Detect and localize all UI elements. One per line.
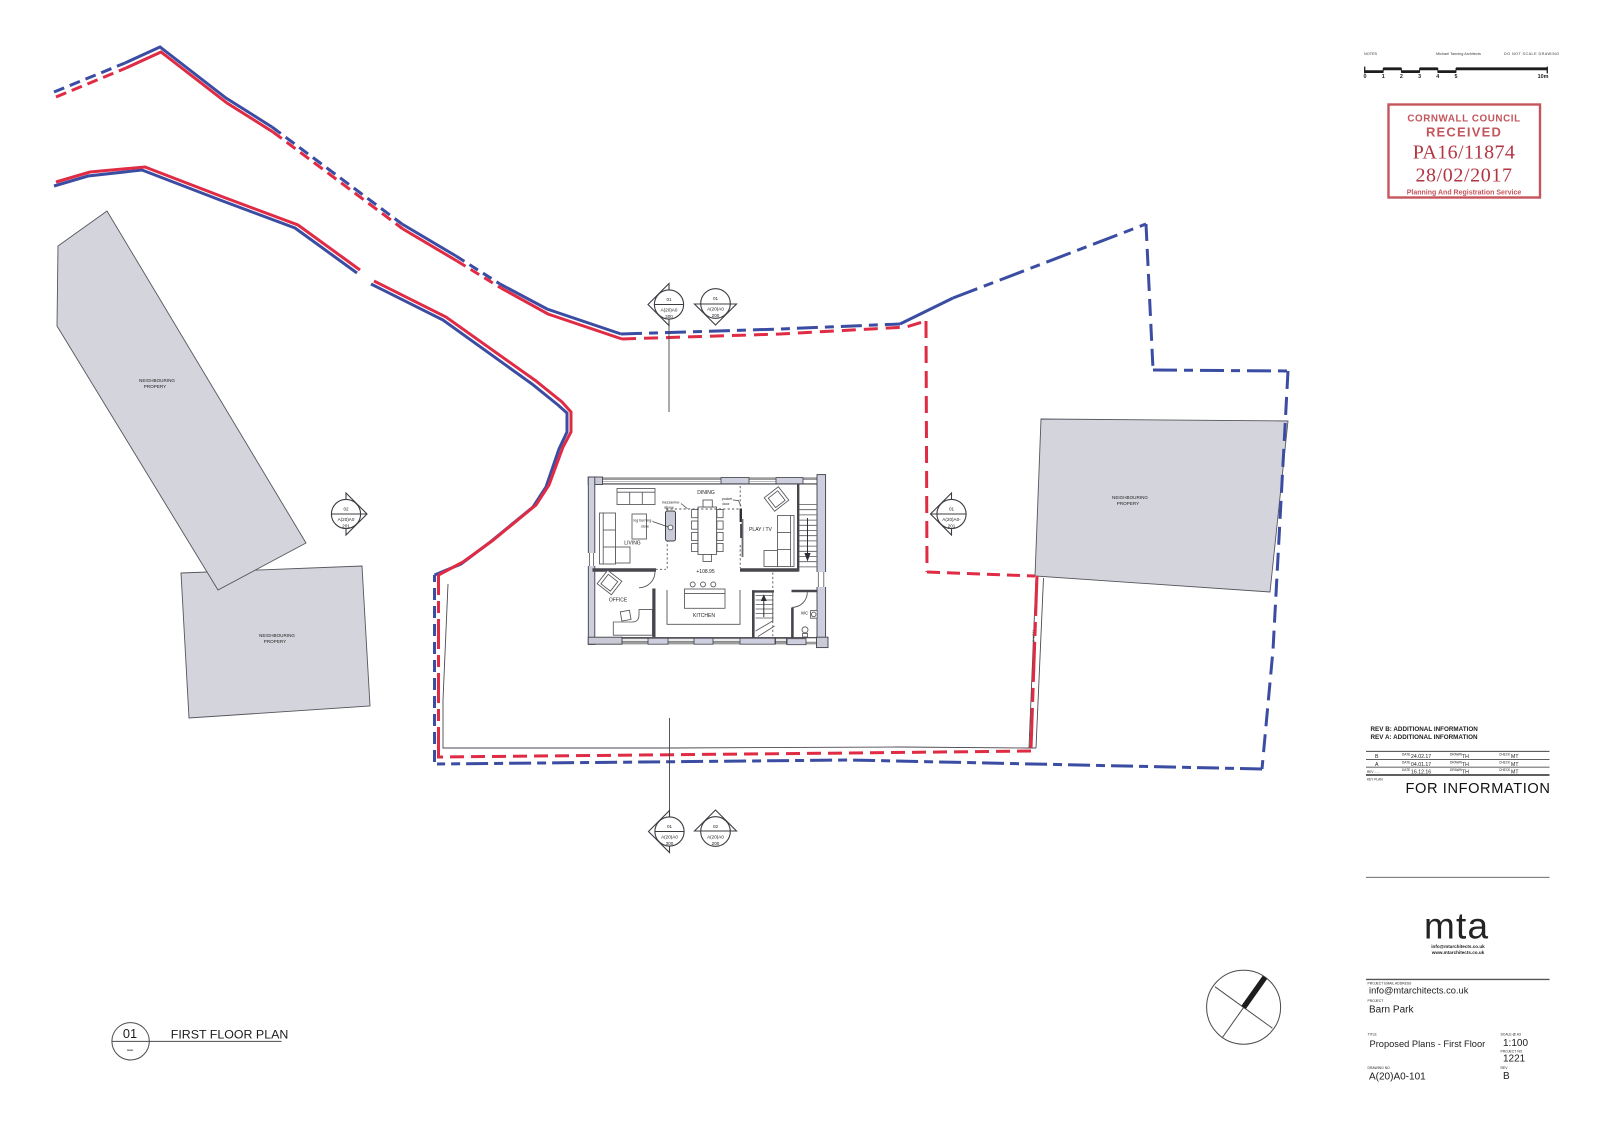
svg-text:16.12.16: 16.12.16 bbox=[1411, 770, 1431, 776]
svg-text:mta: mta bbox=[1424, 906, 1489, 947]
svg-text:mezzanine-: mezzanine- bbox=[662, 501, 681, 505]
svg-text:store: store bbox=[641, 524, 649, 528]
svg-text:LIVING: LIVING bbox=[624, 541, 641, 547]
svg-text:201: 201 bbox=[342, 523, 350, 528]
svg-text:10m: 10m bbox=[1538, 74, 1549, 80]
svg-text:24.02.17: 24.02.17 bbox=[1411, 754, 1431, 760]
svg-text:DATE: DATE bbox=[1402, 768, 1410, 772]
svg-text:B: B bbox=[1375, 754, 1379, 760]
svg-text:1:100: 1:100 bbox=[1503, 1038, 1528, 1049]
svg-text:KITCHEN: KITCHEN bbox=[693, 613, 715, 619]
svg-text:A(20)A0: A(20)A0 bbox=[661, 308, 678, 313]
svg-text:PA16/11874: PA16/11874 bbox=[1413, 142, 1516, 164]
svg-text:5: 5 bbox=[1455, 74, 1458, 80]
svg-text:02: 02 bbox=[343, 507, 349, 512]
svg-text:MT: MT bbox=[1511, 770, 1519, 776]
svg-text:www.mtarchitects.co.uk: www.mtarchitects.co.uk bbox=[1431, 950, 1485, 955]
svg-text:FOR INFORMATION: FOR INFORMATION bbox=[1406, 781, 1551, 797]
svg-text:NEIGHBOURING: NEIGHBOURING bbox=[1112, 495, 1148, 500]
svg-text:–: – bbox=[127, 1044, 134, 1056]
svg-text:PLAY / TV: PLAY / TV bbox=[749, 527, 772, 533]
svg-text:Michael Tanning Architects: Michael Tanning Architects bbox=[1436, 52, 1481, 56]
svg-text:300: 300 bbox=[666, 841, 674, 846]
svg-text:TITLE: TITLE bbox=[1368, 1033, 1378, 1037]
svg-text:3: 3 bbox=[1418, 74, 1421, 80]
svg-text:log burning-: log burning- bbox=[634, 519, 654, 523]
svg-text:DRAWN: DRAWN bbox=[1450, 768, 1463, 772]
svg-text:REV: REV bbox=[1501, 1066, 1509, 1070]
svg-text:1221: 1221 bbox=[1503, 1054, 1526, 1065]
svg-text:DINING: DINING bbox=[697, 490, 715, 496]
svg-text:PROPERY: PROPERY bbox=[1117, 501, 1139, 506]
svg-text:A(20)A0: A(20)A0 bbox=[707, 835, 724, 840]
svg-text:300: 300 bbox=[665, 314, 673, 319]
svg-text:1: 1 bbox=[1382, 74, 1385, 80]
svg-text:201: 201 bbox=[948, 523, 956, 528]
svg-text:SCALE @ A3: SCALE @ A3 bbox=[1501, 1033, 1522, 1037]
svg-text:TH: TH bbox=[1462, 754, 1469, 760]
svg-text:A(20)A0-: A(20)A0- bbox=[942, 517, 961, 522]
svg-text:PROPERY: PROPERY bbox=[144, 384, 166, 389]
svg-text:28/02/2017: 28/02/2017 bbox=[1415, 165, 1512, 187]
svg-text:Barn Park: Barn Park bbox=[1369, 1005, 1414, 1016]
svg-text:PROJECT: PROJECT bbox=[1368, 999, 1384, 1003]
svg-text:REV ......: REV ...... bbox=[1367, 770, 1380, 774]
svg-text:4: 4 bbox=[1436, 74, 1439, 80]
svg-text:DRAWN: DRAWN bbox=[1450, 753, 1463, 757]
svg-text:info@mtarchitects.co.uk: info@mtarchitects.co.uk bbox=[1369, 986, 1469, 996]
svg-text:01: 01 bbox=[123, 1026, 137, 1041]
svg-text:0: 0 bbox=[1364, 74, 1367, 80]
svg-text:WC: WC bbox=[801, 611, 808, 616]
svg-text:NEIGHBOURING: NEIGHBOURING bbox=[139, 378, 175, 383]
svg-text:door: door bbox=[722, 502, 730, 506]
svg-text:A(20)A0: A(20)A0 bbox=[338, 517, 355, 522]
svg-text:CHECK: CHECK bbox=[1499, 768, 1511, 772]
svg-text:above: above bbox=[664, 505, 674, 509]
svg-text:A(20)A0: A(20)A0 bbox=[707, 307, 724, 312]
svg-text:DATE: DATE bbox=[1402, 761, 1410, 765]
svg-text:A(20)A0-101: A(20)A0-101 bbox=[1369, 1072, 1426, 1083]
svg-text:KEY PLAN: KEY PLAN bbox=[1367, 777, 1383, 781]
svg-text:REV A: ADDITIONAL INFORMATION: REV A: ADDITIONAL INFORMATION bbox=[1371, 734, 1478, 741]
svg-text:01: 01 bbox=[667, 824, 673, 829]
svg-text:OFFICE: OFFICE bbox=[609, 598, 628, 604]
svg-text:info@mtarchitects.co.uk: info@mtarchitects.co.uk bbox=[1431, 944, 1485, 949]
svg-text:CHECK: CHECK bbox=[1499, 761, 1511, 765]
svg-text:REV B: ADDITIONAL INFORMATION: REV B: ADDITIONAL INFORMATION bbox=[1371, 726, 1479, 733]
svg-text:A(20)A0: A(20)A0 bbox=[661, 835, 678, 840]
svg-text:NOTES: NOTES bbox=[1364, 52, 1378, 56]
svg-text:CORNWALL COUNCIL: CORNWALL COUNCIL bbox=[1407, 114, 1520, 125]
svg-text:+108.95: +108.95 bbox=[696, 569, 714, 575]
svg-text:DRAWING NO: DRAWING NO bbox=[1368, 1066, 1391, 1070]
svg-text:04.01.17: 04.01.17 bbox=[1411, 762, 1431, 768]
svg-text:NEIGHBOURING: NEIGHBOURING bbox=[259, 633, 295, 638]
svg-text:TH: TH bbox=[1462, 762, 1469, 768]
svg-text:TH: TH bbox=[1462, 770, 1469, 776]
svg-text:FIRST FLOOR PLAN: FIRST FLOOR PLAN bbox=[171, 1028, 289, 1042]
svg-text:B: B bbox=[1503, 1071, 1510, 1082]
svg-text:200: 200 bbox=[712, 313, 720, 318]
svg-text:Proposed Plans - First Floor: Proposed Plans - First Floor bbox=[1370, 1039, 1486, 1049]
svg-text:200: 200 bbox=[712, 841, 720, 846]
svg-text:01: 01 bbox=[949, 507, 955, 512]
svg-text:2: 2 bbox=[1400, 74, 1403, 80]
svg-text:DATE: DATE bbox=[1402, 753, 1410, 757]
svg-text:Planning And Registration Serv: Planning And Registration Service bbox=[1407, 190, 1522, 197]
svg-text:02: 02 bbox=[713, 824, 719, 829]
svg-text:CHECK: CHECK bbox=[1499, 753, 1511, 757]
svg-text:RECEIVED: RECEIVED bbox=[1426, 125, 1502, 140]
svg-text:MT: MT bbox=[1511, 754, 1519, 760]
svg-text:DO NOT SCALE DRAWING: DO NOT SCALE DRAWING bbox=[1504, 52, 1559, 56]
svg-text:PROPERY: PROPERY bbox=[264, 639, 286, 644]
svg-text:MT: MT bbox=[1511, 762, 1519, 768]
svg-text:pocket: pocket bbox=[722, 497, 733, 501]
svg-text:01: 01 bbox=[666, 297, 672, 302]
svg-text:DRAWN: DRAWN bbox=[1450, 761, 1463, 765]
svg-text:A: A bbox=[1375, 762, 1379, 768]
svg-text:01: 01 bbox=[713, 296, 719, 301]
